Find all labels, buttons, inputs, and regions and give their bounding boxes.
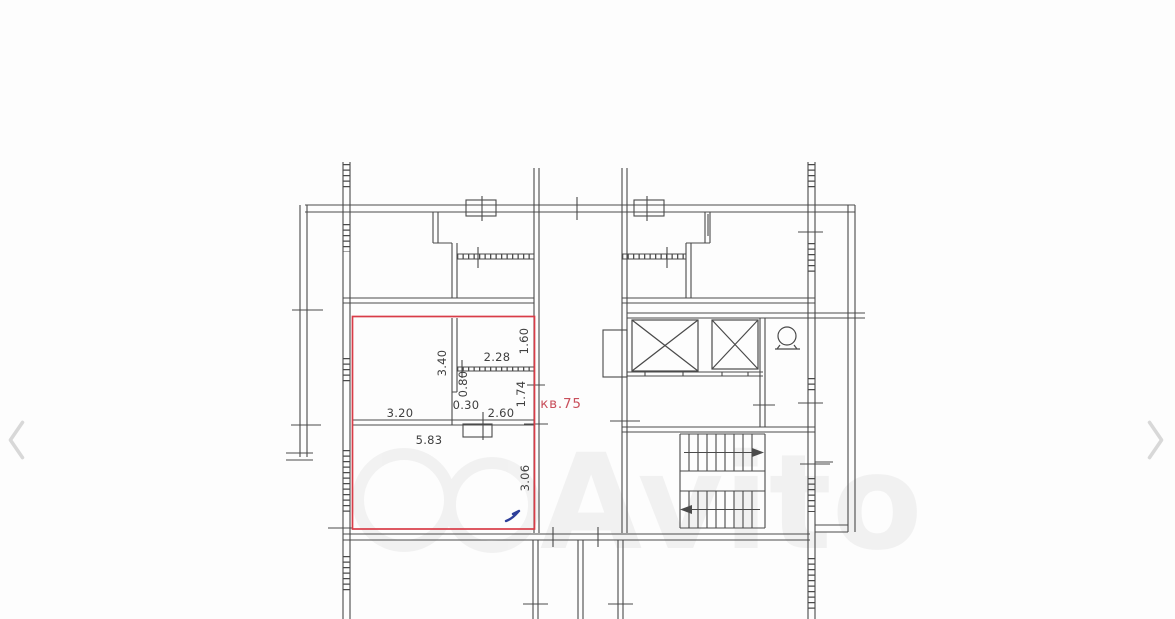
window-block <box>634 200 664 216</box>
watermark-logo <box>358 454 534 547</box>
chevron-right-icon <box>1144 418 1166 462</box>
vent-block <box>463 424 492 437</box>
apartment-number-label: кв.75 <box>540 396 582 412</box>
watermark-text: Avito <box>540 426 923 580</box>
dimension-label-1-74: 1.74 <box>514 381 528 408</box>
elevator-shaft-icon <box>712 320 758 369</box>
garbage-chute-icon <box>775 327 800 349</box>
dimension-label-2-60: 2.60 <box>488 406 515 420</box>
dimension-label-3-40: 3.40 <box>435 350 449 377</box>
dimension-label-1-60: 1.60 <box>517 328 531 355</box>
floor-plan-image[interactable]: Avito <box>0 0 1175 619</box>
dimension-label-2-28: 2.28 <box>484 350 511 364</box>
dimension-label-5-83: 5.83 <box>416 433 443 447</box>
elevator-shaft-icon <box>632 320 698 371</box>
elevator-lobby-walls <box>627 313 865 427</box>
chevron-left-icon <box>6 418 28 462</box>
pen-mark <box>506 511 519 521</box>
corridor-duct <box>603 330 627 377</box>
prev-button[interactable] <box>0 412 34 468</box>
dimension-label-0-30: 0.30 <box>453 398 480 412</box>
photo-viewer: Avito <box>0 0 1175 619</box>
next-button[interactable] <box>1138 412 1172 468</box>
dimension-label-3-06: 3.06 <box>518 465 532 492</box>
dimension-label-0-80: 0.80 <box>456 371 470 398</box>
window-block <box>466 200 496 216</box>
dimension-label-3-20: 3.20 <box>387 406 414 420</box>
floor-plan: Avito <box>0 0 1175 619</box>
apartment-highlight <box>353 317 535 530</box>
